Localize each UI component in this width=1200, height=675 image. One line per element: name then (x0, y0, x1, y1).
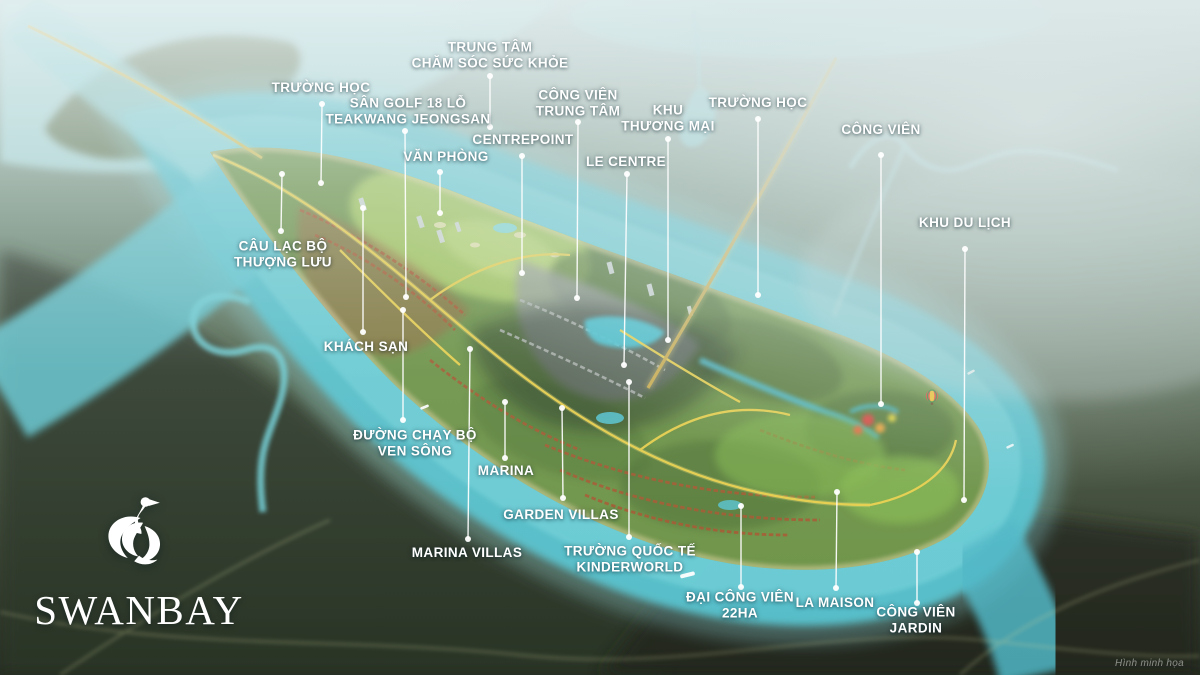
brand-wordmark: SWANBAY (29, 590, 249, 631)
masterplan-scene: TRƯỜNG HỌCTRUNG TÂMCHĂM SÓC SỨC KHỎESÂN … (0, 0, 1200, 675)
swanbay-logo: SWANBAY (29, 494, 249, 631)
watermark-note: Hình minh họa (1115, 658, 1184, 669)
swan-icon (98, 494, 180, 574)
